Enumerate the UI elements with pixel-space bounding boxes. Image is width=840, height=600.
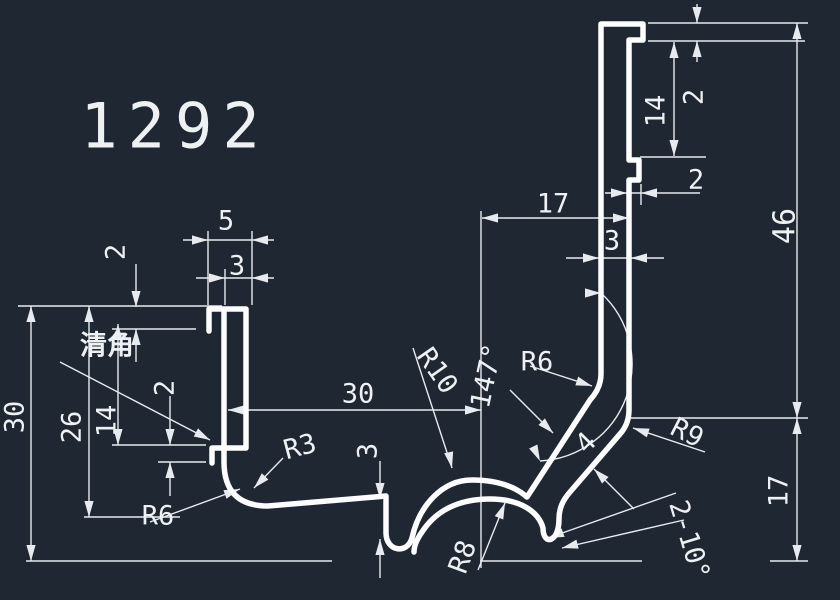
cad-drawing: 1292532清角3026142R6R3303R10147°R6R84R92-1… [0,0,840,600]
dim-26-left: 26 [57,411,88,444]
dim-17-right: 17 [764,475,795,508]
cad-viewport[interactable]: 1292532清角3026142R6R3303R10147°R6R84R92-1… [0,0,840,600]
dim-2-left-lower: 2 [150,380,181,396]
dim-2-left-upper: 2 [101,244,132,260]
dim-30-left: 30 [0,401,31,434]
dim-5-top-left: 5 [218,206,234,237]
dim-14-top-right: 14 [641,95,672,128]
dim-3-top-left: 3 [229,251,245,282]
dim-r6-bend: R6 [521,347,554,378]
dim-3-top-center: 3 [604,226,620,257]
dim-46-right: 46 [768,208,803,244]
part-number: 1292 [80,90,269,163]
dim-2-lip-top: 2 [688,165,704,196]
dim-3-bottom: 3 [353,443,384,459]
dim-14-left: 14 [92,405,123,438]
dim-r6-bottom-left: R6 [142,501,175,532]
dim-17-top: 17 [537,189,570,220]
dim-30-bottom: 30 [342,379,375,410]
dim-2-top-right: 2 [679,89,710,105]
note-qingjiao: 清角 [80,330,134,362]
